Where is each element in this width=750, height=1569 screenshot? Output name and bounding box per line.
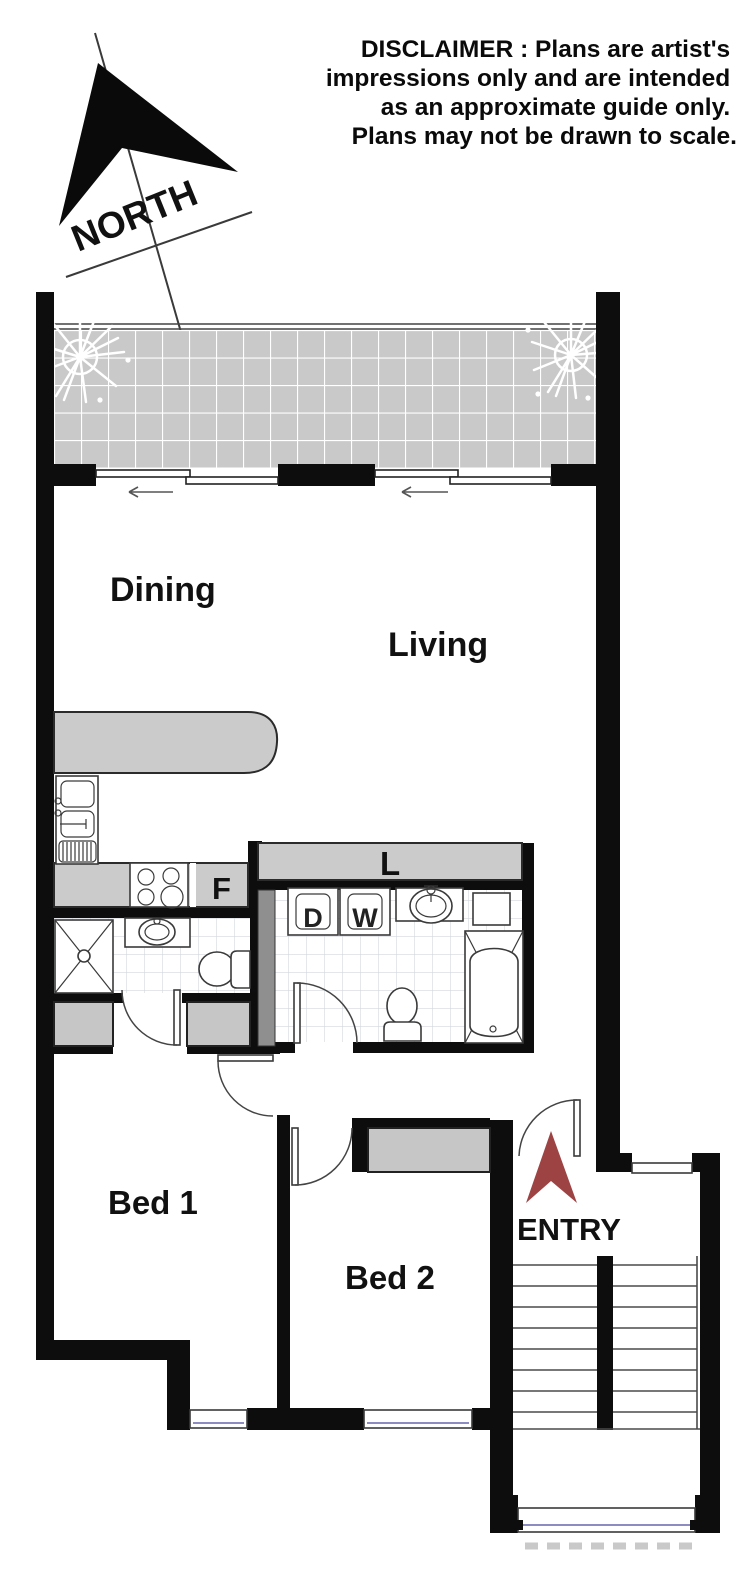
robe-bed2 <box>368 1128 490 1172</box>
balcony-tiles <box>54 330 596 468</box>
wall-slider-middle <box>278 464 375 486</box>
wall-landing-corner-l <box>490 1495 518 1533</box>
wall-bed-bottom-a <box>247 1408 364 1430</box>
balcony <box>33 303 616 468</box>
wall-slider-left <box>36 464 96 486</box>
floor-plan-page: DISCLAIMER : Plans are artist's impressi… <box>0 0 750 1569</box>
kitchen: F <box>54 712 277 908</box>
robe-bed1-right <box>187 1002 250 1046</box>
wall-bed-divider <box>277 1115 290 1408</box>
vanity-cabinet <box>473 893 510 925</box>
bed2-window <box>364 1410 472 1428</box>
basin-icon <box>396 886 463 923</box>
slide-direction-arrow <box>129 487 173 497</box>
wall-right-outer <box>596 292 620 1156</box>
wall-bed-bottom-b <box>472 1408 513 1430</box>
slider-panel <box>186 477 278 484</box>
shower-icon <box>55 920 113 993</box>
slider-panel <box>96 470 190 477</box>
wall-robe-edge-a <box>36 1046 113 1054</box>
floor-plan-svg: DISCLAIMER : Plans are artist's impressi… <box>0 0 750 1569</box>
fridge-label: F <box>212 871 231 906</box>
disclaimer-text: DISCLAIMER : Plans are artist's impressi… <box>326 36 737 150</box>
washer-icon: W <box>340 888 390 935</box>
ensuite-basin-icon <box>125 918 190 947</box>
washer-label: W <box>352 903 378 933</box>
slide-direction-arrow <box>402 487 448 497</box>
bed2-label: Bed 2 <box>345 1259 435 1296</box>
wall-robe-edge-b <box>187 1046 280 1054</box>
linen-label: L <box>380 845 400 882</box>
kitchen-sink-icon <box>55 776 98 864</box>
bench-divider <box>190 863 196 907</box>
wall-stair-right <box>700 1153 720 1533</box>
slider-panel <box>450 477 551 484</box>
wall-slider-right <box>551 464 620 486</box>
duct-wall <box>258 890 275 1046</box>
svg-text:DISCLAIMER : Plans are artist': DISCLAIMER : Plans are artist's impressi… <box>326 36 737 150</box>
wall-stair-left <box>490 1120 513 1533</box>
ensuite-door <box>122 990 180 1045</box>
bed1-label: Bed 1 <box>108 1184 198 1221</box>
wall-entry-top-a <box>596 1153 632 1172</box>
wall-bed2-top <box>352 1118 490 1128</box>
bed2-door <box>292 1128 352 1185</box>
living-label: Living <box>388 626 488 664</box>
wall-step-vert <box>167 1360 190 1430</box>
dining-label: Dining <box>110 571 216 609</box>
entry-arrow-icon <box>526 1131 577 1203</box>
ensuite <box>54 918 250 1046</box>
slider-panel <box>375 470 458 477</box>
cooktop-icon <box>130 863 188 908</box>
bed1-window <box>190 1410 247 1428</box>
bed1-door <box>218 1055 273 1116</box>
wall-robe2-cap <box>352 1128 368 1172</box>
dryer-label: D <box>303 903 323 933</box>
stair-landing-window <box>515 1508 698 1532</box>
entry-label: ENTRY <box>517 1212 621 1247</box>
dryer-icon: D <box>288 888 338 935</box>
kitchen-bench-upper <box>54 712 277 773</box>
bathtub-icon <box>465 931 523 1043</box>
ensuite-toilet-icon <box>199 951 250 988</box>
wall-step-bottom <box>36 1340 190 1360</box>
robe-bed1-left <box>54 1002 113 1046</box>
entry-side-window <box>632 1163 692 1173</box>
bathroom-main: D W <box>258 886 523 1046</box>
bedrooms: Bed 1 Bed 2 <box>108 1128 490 1296</box>
wall-landing-corner-r <box>695 1495 720 1533</box>
wall-stair-divider <box>597 1256 613 1430</box>
wall-left-outer <box>36 292 54 1360</box>
linen-closet: L <box>258 843 522 882</box>
